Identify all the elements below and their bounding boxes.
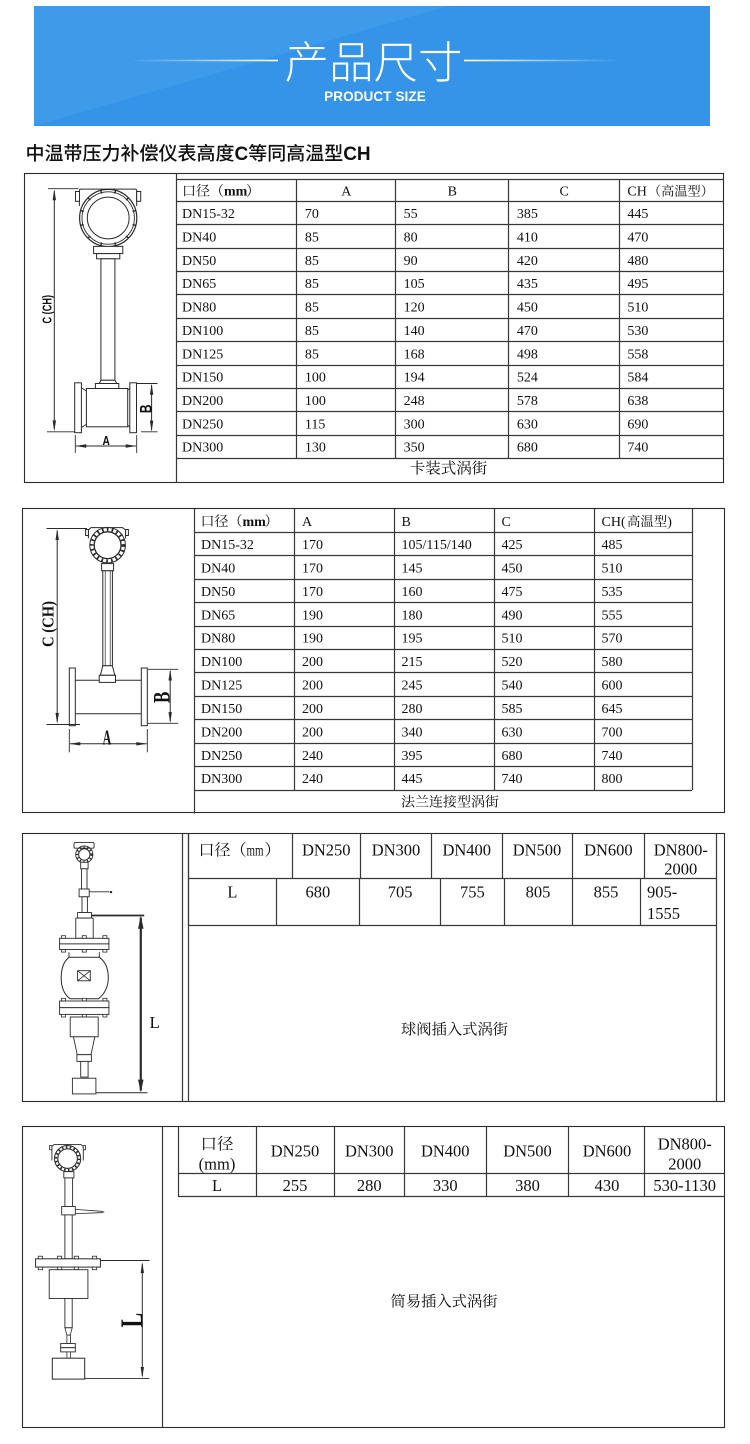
svg-text:DN500: DN500 [503,1142,552,1161]
svg-text:B: B [150,692,175,703]
svg-text:190: 190 [302,608,323,623]
svg-text:420: 420 [517,254,538,269]
svg-text:DN40: DN40 [182,230,216,245]
svg-text:755: 755 [460,883,485,902]
svg-text:DN65: DN65 [182,277,216,292]
svg-text:100: 100 [305,394,326,409]
svg-text:395: 395 [402,749,423,764]
svg-text:DN300: DN300 [372,841,421,860]
svg-text:445: 445 [627,207,648,222]
svg-text:DN200: DN200 [182,394,223,409]
svg-text:85: 85 [305,347,319,362]
svg-text:690: 690 [627,417,648,432]
svg-text:DN300: DN300 [201,772,242,787]
svg-text:170: 170 [302,538,323,553]
svg-text:630: 630 [502,725,523,740]
svg-text:410: 410 [517,230,538,245]
svg-text:498: 498 [517,347,538,362]
svg-text:905-: 905- [647,883,677,902]
svg-text:DN80: DN80 [182,301,216,316]
svg-text:DN250: DN250 [271,1142,320,1161]
svg-text:585: 585 [502,702,523,717]
svg-text:C: C [559,185,568,200]
svg-text:430: 430 [595,1176,620,1195]
svg-text:DN250: DN250 [182,417,223,432]
svg-text:740: 740 [502,772,523,787]
svg-text:380: 380 [515,1176,540,1195]
svg-text:485: 485 [602,538,623,553]
svg-text:85: 85 [305,277,319,292]
svg-text:524: 524 [517,371,538,386]
svg-text:570: 570 [602,632,623,647]
svg-text:DN800-: DN800- [658,1135,712,1154]
svg-text:2000: 2000 [664,860,697,879]
svg-text:535: 535 [602,585,623,600]
svg-text:855: 855 [594,883,619,902]
svg-text:195: 195 [402,632,423,647]
svg-text:330: 330 [433,1176,458,1195]
svg-text:DN400: DN400 [421,1142,470,1161]
svg-text:1555: 1555 [647,904,680,923]
svg-text:CH(: CH( [602,515,626,530]
svg-text:645: 645 [602,702,623,717]
svg-text:385: 385 [517,207,538,222]
svg-text:mm: mm [224,185,248,200]
svg-text:510: 510 [602,562,623,577]
svg-text:240: 240 [302,749,323,764]
svg-text:B: B [448,185,457,200]
svg-text:DN600: DN600 [583,1142,632,1161]
svg-text:445: 445 [402,772,423,787]
svg-text:740: 740 [602,749,623,764]
svg-text:245: 245 [402,679,423,694]
svg-text:DN250: DN250 [201,749,242,764]
svg-text:680: 680 [502,749,523,764]
svg-text:280: 280 [357,1176,382,1195]
svg-text:85: 85 [305,324,319,339]
svg-text:520: 520 [502,655,523,670]
svg-text:350: 350 [404,441,425,456]
svg-text:130: 130 [305,441,326,456]
svg-text:200: 200 [302,655,323,670]
svg-text:): ) [667,515,672,530]
svg-text:580: 580 [602,655,623,670]
svg-text:CH: CH [627,185,646,200]
svg-text:90: 90 [404,254,418,269]
svg-text:240: 240 [302,772,323,787]
svg-text:C (CH): C (CH) [38,601,57,647]
svg-text:170: 170 [302,562,323,577]
svg-text:DN125: DN125 [182,347,223,362]
svg-text:190: 190 [302,632,323,647]
svg-text:CH: CH [343,144,370,165]
svg-text:805: 805 [526,883,551,902]
svg-text:A: A [341,185,352,200]
svg-text:215: 215 [402,655,423,670]
svg-text:mm: mm [247,843,264,860]
svg-text:530: 530 [627,324,648,339]
svg-text:DN300: DN300 [345,1142,394,1161]
svg-text:80: 80 [404,230,418,245]
svg-text:DN800-: DN800- [654,841,708,860]
svg-text:450: 450 [517,301,538,316]
svg-text:194: 194 [404,371,425,386]
svg-text:B: B [138,404,156,413]
svg-text:DN400: DN400 [442,841,491,860]
svg-text:145: 145 [402,562,423,577]
svg-text:DN500: DN500 [513,841,562,860]
svg-text:DN40: DN40 [201,562,235,577]
svg-text:680: 680 [306,883,331,902]
svg-text:100: 100 [305,371,326,386]
svg-text:200: 200 [302,679,323,694]
svg-text:800: 800 [602,772,623,787]
svg-text:B: B [402,515,411,530]
svg-text:470: 470 [627,230,648,245]
svg-text:470: 470 [517,324,538,339]
svg-text:DN300: DN300 [182,441,223,456]
svg-text:530-1130: 530-1130 [653,1176,716,1195]
svg-text:630: 630 [517,417,538,432]
svg-text:248: 248 [404,394,425,409]
svg-text:L: L [150,1013,160,1032]
svg-text:DN150: DN150 [201,702,242,717]
svg-text:638: 638 [627,394,648,409]
svg-text:558: 558 [627,347,648,362]
svg-text:A: A [103,726,112,749]
svg-text:DN150: DN150 [182,371,223,386]
svg-text:L: L [227,883,237,902]
svg-text:mm: mm [243,515,267,530]
svg-text:168: 168 [404,347,425,362]
svg-text:495: 495 [627,277,648,292]
svg-text:340: 340 [402,725,423,740]
svg-text:480: 480 [627,254,648,269]
svg-text:540: 540 [502,679,523,694]
svg-text:200: 200 [302,702,323,717]
svg-text:120: 120 [404,301,425,316]
svg-text:85: 85 [305,301,319,316]
svg-text:2000: 2000 [668,1155,701,1174]
svg-text:105/115/140: 105/115/140 [402,538,472,553]
svg-text:180: 180 [402,608,423,623]
svg-text:DN100: DN100 [182,324,223,339]
svg-text:L: L [115,1313,150,1328]
svg-text:55: 55 [404,207,418,222]
svg-text:140: 140 [404,324,425,339]
svg-text:280: 280 [402,702,423,717]
svg-text:555: 555 [602,608,623,623]
svg-text:475: 475 [502,585,523,600]
svg-text:740: 740 [627,441,648,456]
svg-text:435: 435 [517,277,538,292]
svg-text:700: 700 [602,725,623,740]
svg-text:105: 105 [404,277,425,292]
svg-text:200: 200 [302,725,323,740]
svg-text:A: A [103,434,111,448]
svg-text:DN200: DN200 [201,725,242,740]
svg-text:DN15-32: DN15-32 [182,207,235,222]
svg-text:600: 600 [602,679,623,694]
svg-text:160: 160 [402,585,423,600]
svg-text:490: 490 [502,608,523,623]
svg-text:L: L [212,1176,222,1195]
svg-text:510: 510 [627,301,648,316]
svg-text:DN100: DN100 [201,655,242,670]
svg-text:DN50: DN50 [182,254,216,269]
svg-text:DN15-32: DN15-32 [201,538,254,553]
svg-text:70: 70 [305,207,319,222]
svg-text:DN50: DN50 [201,585,235,600]
svg-text:170: 170 [302,585,323,600]
svg-text:C: C [502,515,511,530]
svg-text:DN250: DN250 [302,841,351,860]
svg-text:85: 85 [305,230,319,245]
svg-text:(mm): (mm) [199,1155,236,1174]
svg-text:584: 584 [627,371,648,386]
svg-text:705: 705 [388,883,413,902]
svg-text:115: 115 [305,417,325,432]
svg-text:255: 255 [283,1176,308,1195]
svg-text:425: 425 [502,538,523,553]
svg-text:DN600: DN600 [584,841,633,860]
svg-text:C (CH): C (CH) [40,295,55,324]
svg-text:DN125: DN125 [201,679,242,694]
svg-text:510: 510 [502,632,523,647]
svg-text:450: 450 [502,562,523,577]
svg-text:300: 300 [404,417,425,432]
svg-text:A: A [302,515,313,530]
svg-text:PRODUCT SIZE: PRODUCT SIZE [324,89,426,104]
svg-text:DN65: DN65 [201,608,235,623]
svg-text:C: C [235,144,249,165]
svg-text:680: 680 [517,441,538,456]
svg-text:85: 85 [305,254,319,269]
svg-text:DN80: DN80 [201,632,235,647]
svg-text:578: 578 [517,394,538,409]
